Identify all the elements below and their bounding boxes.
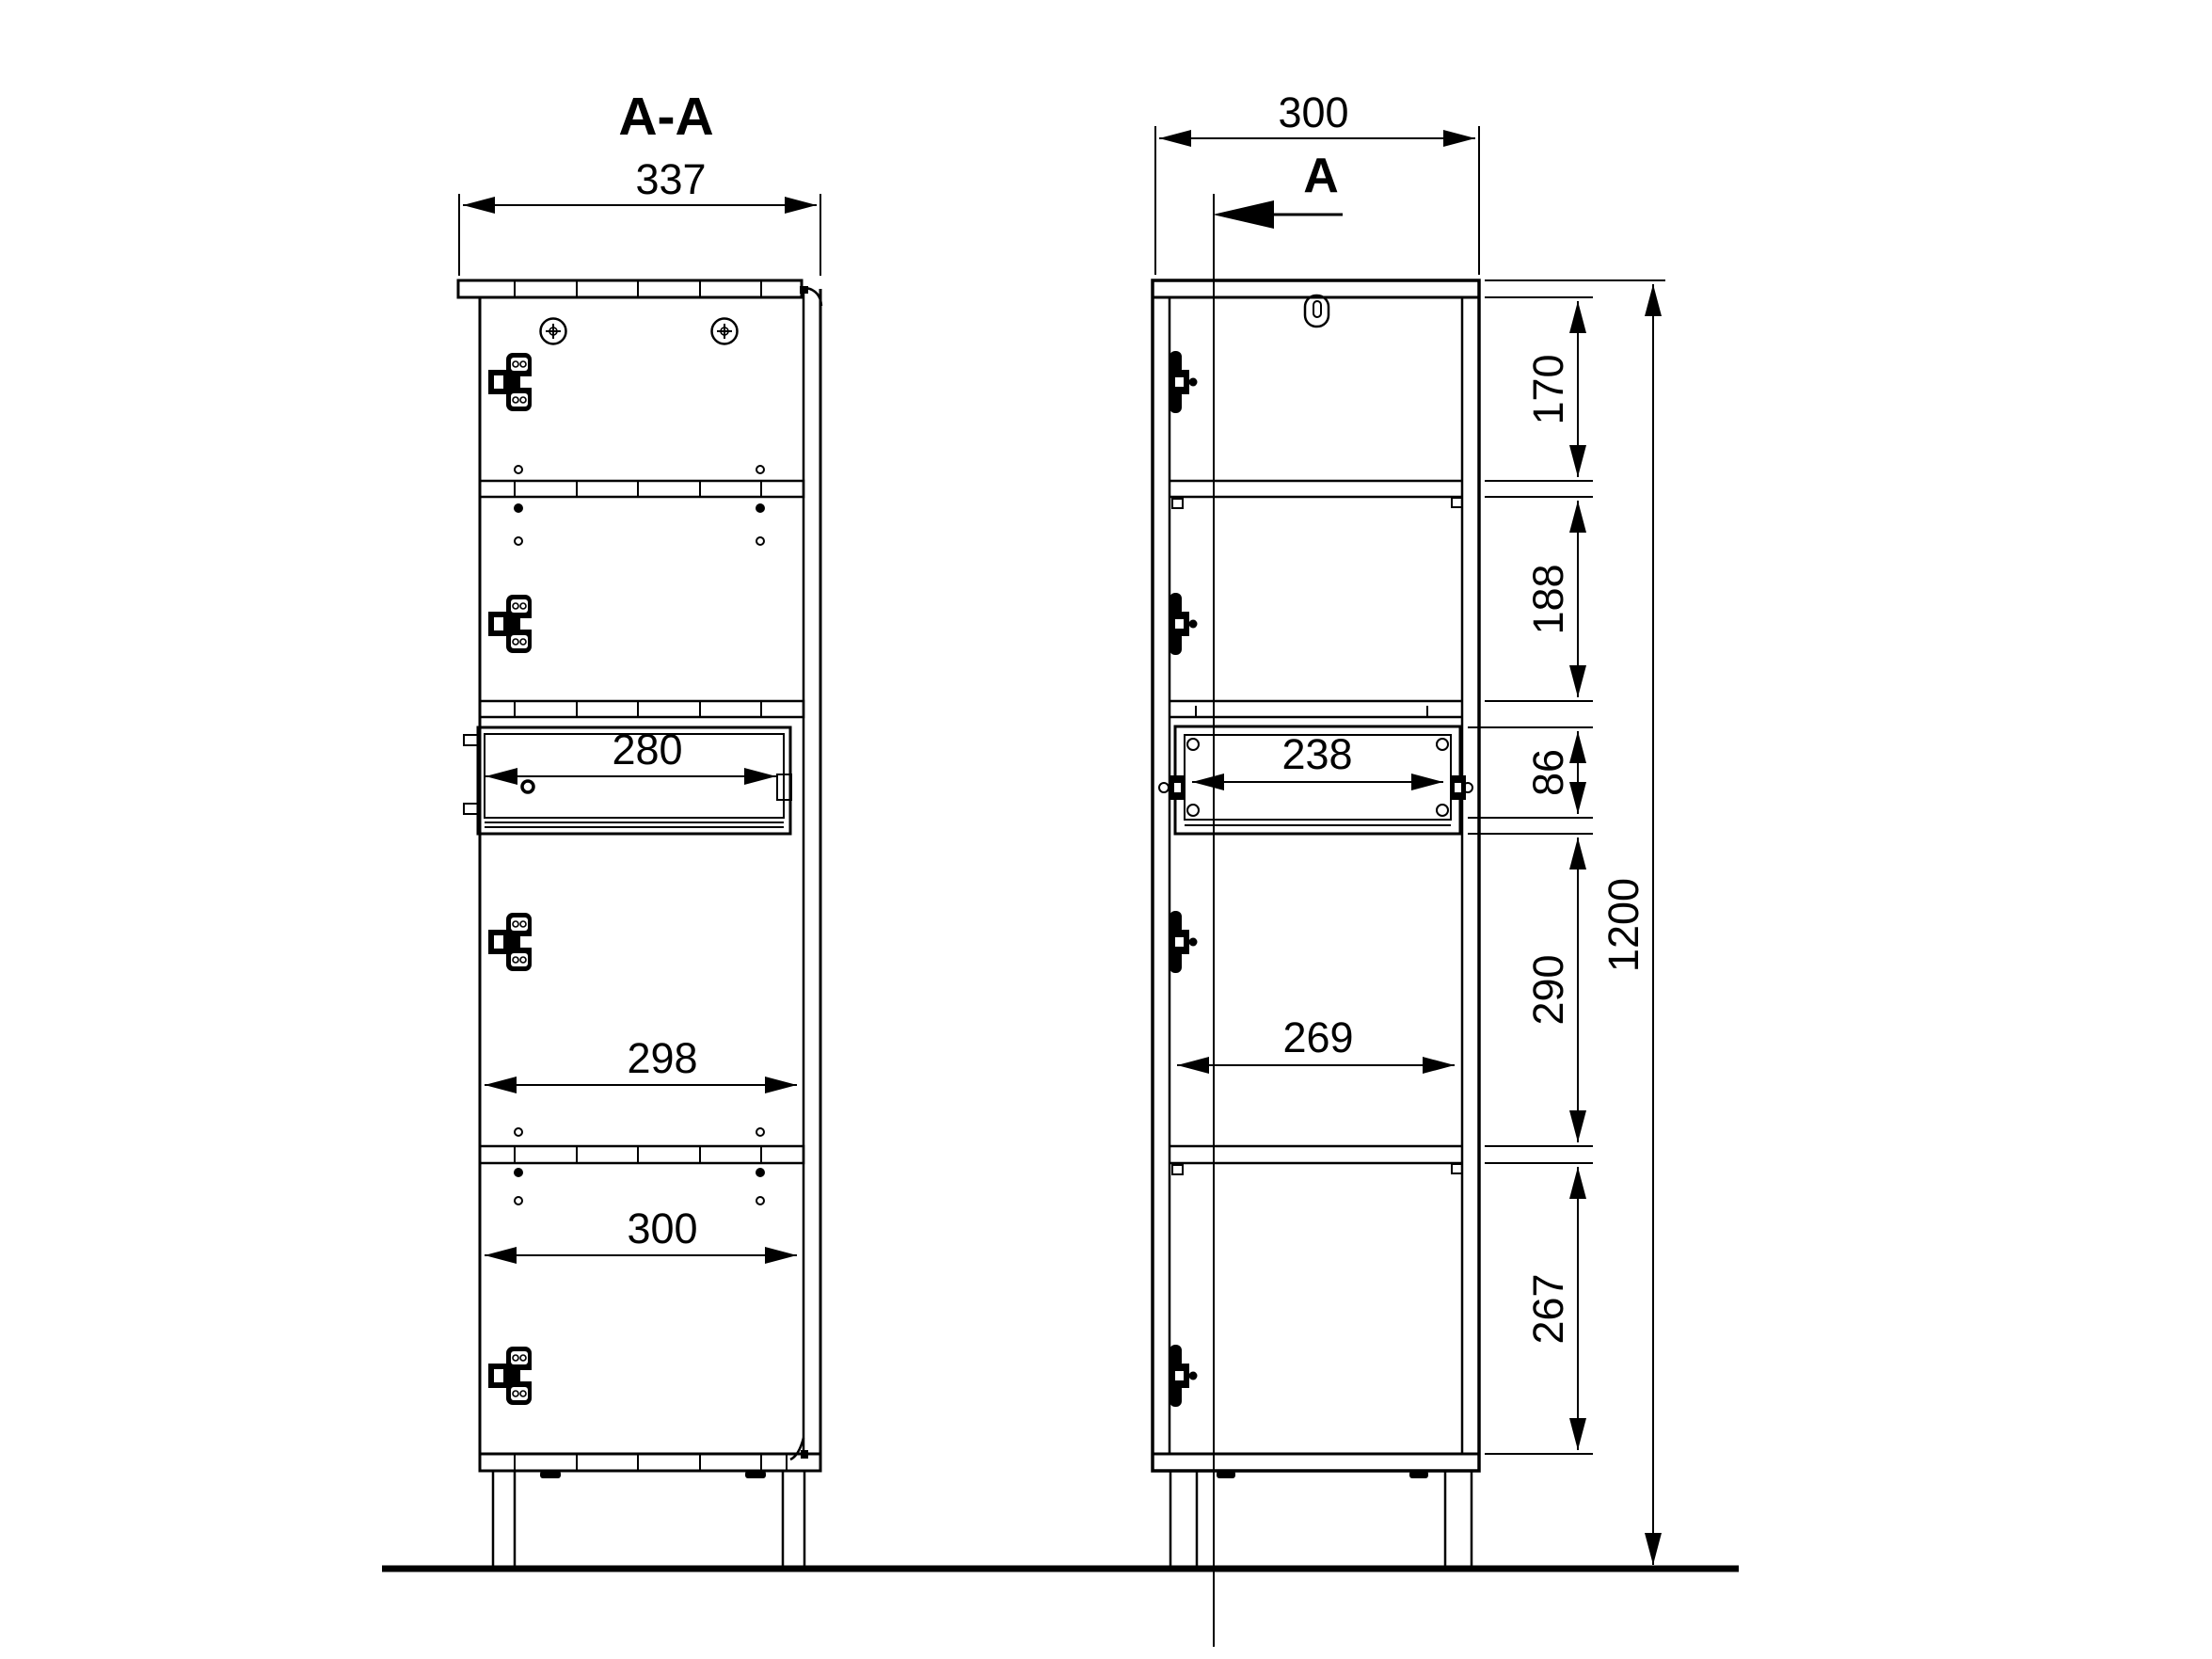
shelf-pin-hole <box>756 1128 764 1136</box>
dim-height-segment: 267 <box>1524 1273 1572 1344</box>
foot <box>493 1471 515 1569</box>
shelf-band <box>480 481 804 497</box>
dim-inner-width-label: 269 <box>1282 1013 1353 1061</box>
shelf-pin-hole <box>756 537 764 545</box>
dim-depth-label: 337 <box>635 155 706 203</box>
drawer-knob <box>522 781 533 792</box>
foot-peg <box>540 1471 561 1478</box>
shelf-clip <box>1452 498 1462 507</box>
front-view: 300 A <box>1153 88 1665 1647</box>
drawer-side-view: 280 <box>464 726 791 834</box>
shelf-pin-hole <box>515 537 522 545</box>
dimension-inner-depth-bottom: 300 <box>485 1204 797 1255</box>
dim-drawer-depth-label: 280 <box>612 726 682 774</box>
dim-total-height-label: 1200 <box>1599 878 1647 972</box>
dim-height-segment: 188 <box>1524 564 1572 634</box>
hinge-icon <box>488 1347 532 1405</box>
shelf-band <box>480 1146 804 1163</box>
foot <box>783 1471 804 1569</box>
keyhole-icon <box>1305 295 1329 327</box>
drawing-page: A-A 337 <box>0 0 2212 1659</box>
door-section <box>790 286 821 1460</box>
dim-height-segment: 86 <box>1524 749 1572 796</box>
section-title-label: A-A <box>618 87 713 147</box>
top-panel-section <box>458 280 802 297</box>
dim-inner-depth-mid-label: 298 <box>627 1034 697 1082</box>
foot-peg <box>1217 1471 1235 1478</box>
dimension-inner-width: 269 <box>1177 1013 1455 1065</box>
hinge-icon <box>488 353 532 411</box>
shelf-pin <box>756 1168 765 1177</box>
dim-inner-depth-bottom-label: 300 <box>627 1204 697 1252</box>
rail-band <box>480 701 804 717</box>
dim-drawer-width-label: 238 <box>1281 730 1352 778</box>
dimension-height-chain: 170 188 86 290 267 <box>1524 301 1578 1450</box>
foot <box>1170 1471 1197 1569</box>
dimension-overall-depth: 337 <box>459 155 820 276</box>
cabinet-outline <box>1153 280 1479 1471</box>
foot-peg <box>745 1471 766 1478</box>
cam-lock-icon <box>541 319 566 344</box>
dimension-overall-height: 1200 <box>1599 284 1653 1565</box>
shelf-pin <box>514 1168 523 1177</box>
shelf-pin <box>514 503 523 513</box>
section-cut-arrow <box>1213 200 1343 229</box>
shelf-pin-hole <box>756 466 764 473</box>
shelf-pin <box>756 503 765 513</box>
shelf-pin-hole <box>515 1128 522 1136</box>
shelf-pin-hole <box>515 1197 522 1204</box>
cam-lock-icon <box>712 319 738 344</box>
technical-drawing: A-A 337 <box>0 0 2212 1659</box>
hinge-icon <box>1170 1345 1198 1407</box>
drawer-slide-clip <box>464 735 478 745</box>
hinge-icon <box>1170 911 1198 973</box>
foot-peg <box>1409 1471 1428 1478</box>
dim-width-label: 300 <box>1278 88 1348 136</box>
dim-height-segment: 170 <box>1524 354 1572 424</box>
hinge-icon <box>488 595 532 653</box>
foot <box>1445 1471 1472 1569</box>
shelf-clip <box>1452 1164 1462 1173</box>
section-view: A-A 337 <box>458 87 821 1569</box>
dimension-drawer-width: 238 <box>1192 730 1443 782</box>
hinge-icon <box>1170 593 1198 655</box>
cut-arrow-label: A <box>1303 149 1339 203</box>
shelf-clip <box>1172 1165 1183 1174</box>
bottom-panel-section <box>480 1454 820 1471</box>
dimension-inner-depth-mid: 298 <box>485 1034 797 1085</box>
drawer-slide-clip <box>464 804 478 814</box>
drawer-front-view: 238 <box>1159 726 1472 834</box>
shelf-pin-hole <box>756 1197 764 1204</box>
hinge-icon <box>1170 351 1198 413</box>
hinge-icon <box>488 913 532 971</box>
dim-height-segment: 290 <box>1524 954 1572 1025</box>
shelf-clip <box>1172 499 1183 508</box>
shelf-pin-hole <box>515 466 522 473</box>
